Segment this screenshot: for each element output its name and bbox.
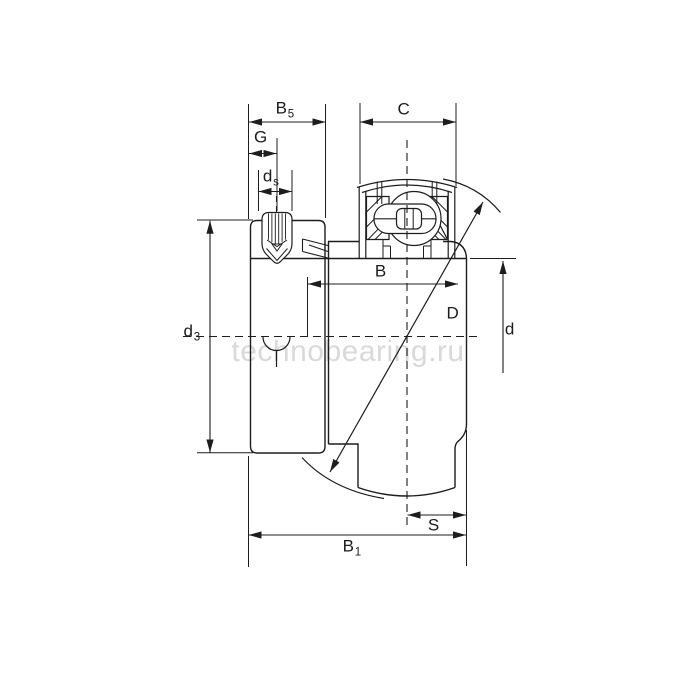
dim-label-g: G [254,129,268,150]
dim-label-b5: B5 [276,100,295,121]
set-screw-detail [262,213,292,264]
extension-lines [197,103,516,567]
dim-label-d-bore: d [505,321,515,342]
bearing-line-drawing [0,0,700,700]
dim-label-ds: ds [263,168,279,189]
dim-label-b: B [375,263,387,284]
center-mark [263,337,290,367]
drawing-canvas: technobearing.ru [0,0,700,700]
dim-label-d-outer: D [446,305,459,326]
bearing-body-outline [251,221,467,497]
dimension-lines [210,122,503,535]
dim-label-d3: d3 [184,323,201,344]
dim-label-s: S [428,517,440,538]
dim-label-c: C [397,101,410,122]
dim-label-b1: B1 [343,538,362,559]
